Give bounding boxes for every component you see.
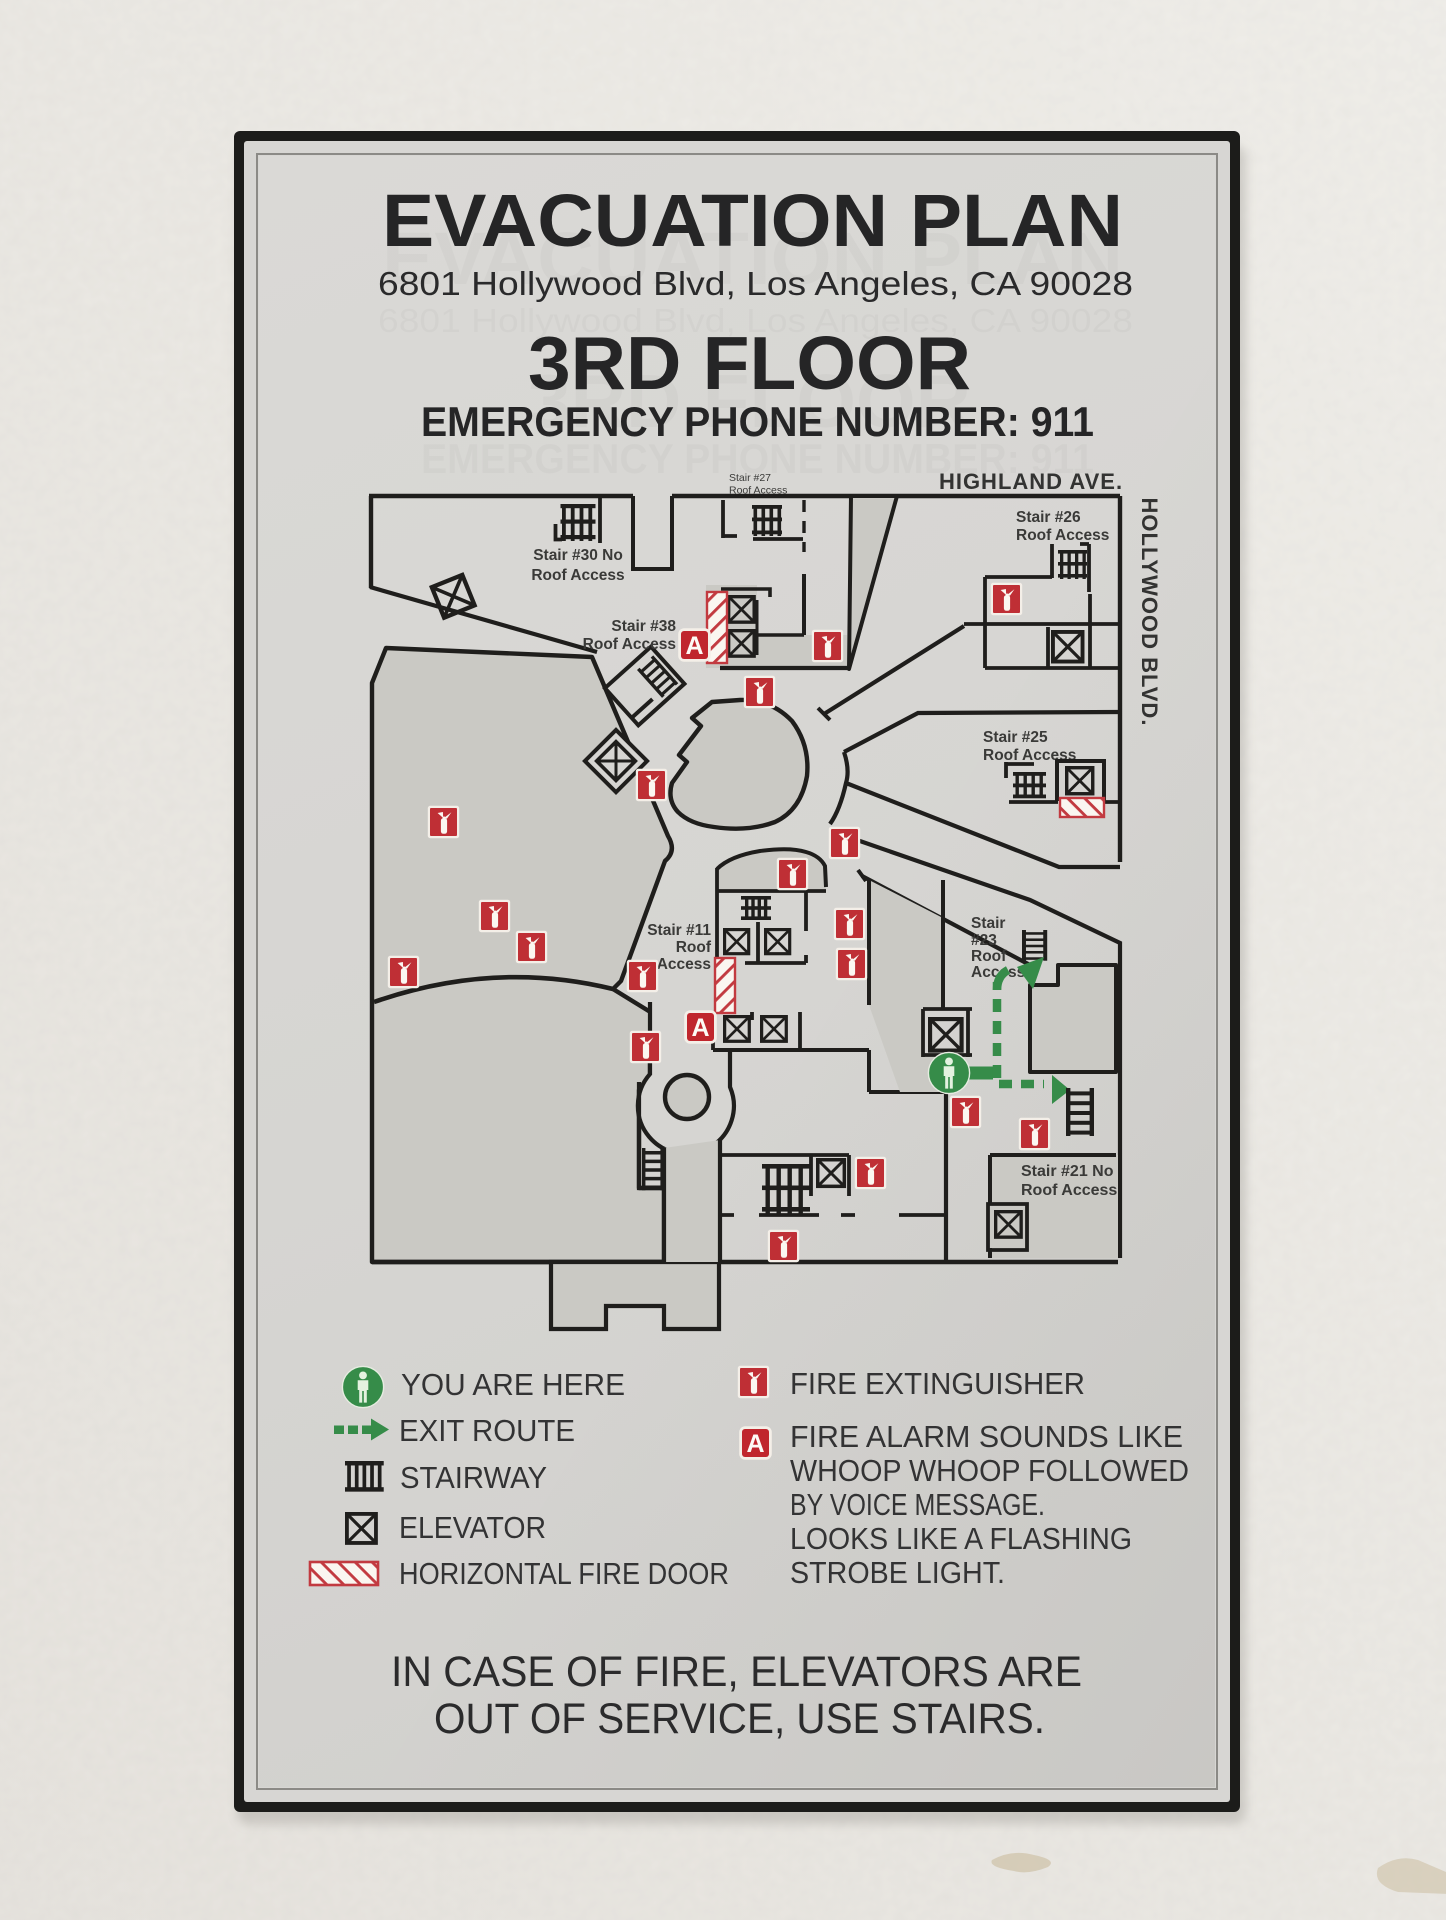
svg-text:FIRE EXTINGUISHER: FIRE EXTINGUISHER — [790, 1366, 1085, 1401]
svg-text:3RD FLOOR: 3RD FLOOR — [528, 321, 971, 405]
svg-text:EMERGENCY PHONE NUMBER: 911: EMERGENCY PHONE NUMBER: 911 — [421, 398, 1094, 445]
svg-text:YOU ARE HERE: YOU ARE HERE — [401, 1367, 625, 1402]
svg-text:OUT OF SERVICE, USE STAIRS.: OUT OF SERVICE, USE STAIRS. — [434, 1695, 1045, 1743]
svg-text:Stair #25: Stair #25 — [983, 729, 1048, 746]
svg-text:Roof Access: Roof Access — [729, 485, 787, 497]
svg-text:Roof Access: Roof Access — [531, 567, 624, 584]
svg-text:Stair #27: Stair #27 — [729, 472, 771, 484]
svg-text:EVACUATION PLAN: EVACUATION PLAN — [382, 179, 1123, 262]
svg-text:Stair #30 No: Stair #30 No — [533, 547, 623, 564]
svg-text:#23: #23 — [971, 932, 997, 949]
svg-text:STAIRWAY: STAIRWAY — [400, 1460, 547, 1495]
svg-text:ELEVATOR: ELEVATOR — [399, 1510, 546, 1545]
svg-text:Stair #21 No: Stair #21 No — [1021, 1163, 1114, 1180]
svg-text:HORIZONTAL FIRE DOOR: HORIZONTAL FIRE DOOR — [399, 1556, 729, 1591]
svg-text:Stair #11: Stair #11 — [647, 922, 711, 939]
svg-text:FIRE ALARM SOUNDS LIKE: FIRE ALARM SOUNDS LIKE — [790, 1419, 1183, 1454]
svg-text:STROBE LIGHT.: STROBE LIGHT. — [790, 1555, 1005, 1590]
svg-text:Roof Access: Roof Access — [1021, 1182, 1117, 1199]
svg-text:Roof Access: Roof Access — [583, 636, 676, 653]
svg-text:IN CASE OF FIRE, ELEVATORS ARE: IN CASE OF FIRE, ELEVATORS ARE — [391, 1648, 1082, 1696]
svg-text:Stair #26: Stair #26 — [1016, 509, 1081, 526]
svg-text:Access: Access — [657, 956, 711, 973]
svg-text:Roof: Roof — [971, 948, 1007, 965]
svg-text:HIGHLAND AVE.: HIGHLAND AVE. — [939, 469, 1123, 494]
svg-text:Stair: Stair — [971, 915, 1005, 932]
svg-text:HOLLYWOOD BLVD.: HOLLYWOOD BLVD. — [1137, 498, 1162, 727]
svg-text:LOOKS LIKE A FLASHING: LOOKS LIKE A FLASHING — [790, 1521, 1132, 1556]
svg-text:WHOOP WHOOP FOLLOWED: WHOOP WHOOP FOLLOWED — [790, 1453, 1189, 1488]
svg-text:Roof: Roof — [676, 939, 712, 956]
svg-text:Roof Access: Roof Access — [1016, 527, 1109, 544]
svg-text:Stair #38: Stair #38 — [611, 618, 676, 635]
svg-text:EXIT ROUTE: EXIT ROUTE — [399, 1413, 575, 1448]
svg-text:6801 Hollywood Blvd, Los Angel: 6801 Hollywood Blvd, Los Angeles, CA 900… — [378, 265, 1133, 302]
svg-text:BY VOICE MESSAGE.: BY VOICE MESSAGE. — [790, 1487, 1045, 1522]
